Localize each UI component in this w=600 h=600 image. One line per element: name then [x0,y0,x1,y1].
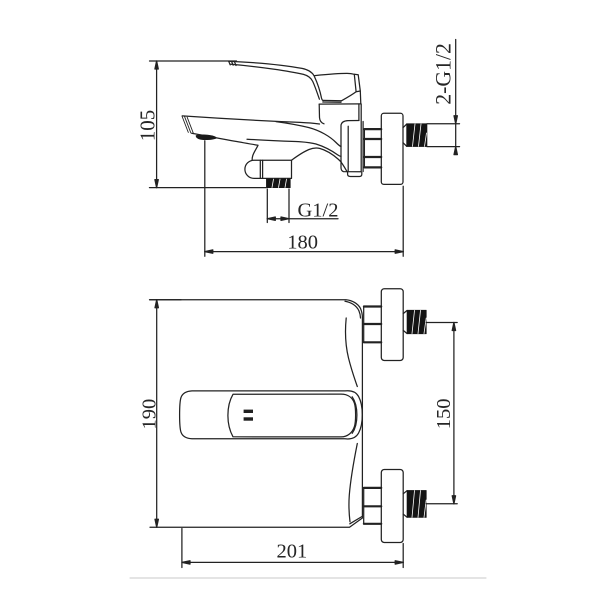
svg-text:G1/2: G1/2 [298,199,339,221]
svg-text:105: 105 [136,110,160,142]
svg-text:180: 180 [287,232,318,254]
svg-text:201: 201 [277,541,308,563]
svg-text:190: 190 [139,399,161,430]
svg-text:2-G1/2: 2-G1/2 [432,43,456,105]
svg-text:150: 150 [433,399,455,430]
